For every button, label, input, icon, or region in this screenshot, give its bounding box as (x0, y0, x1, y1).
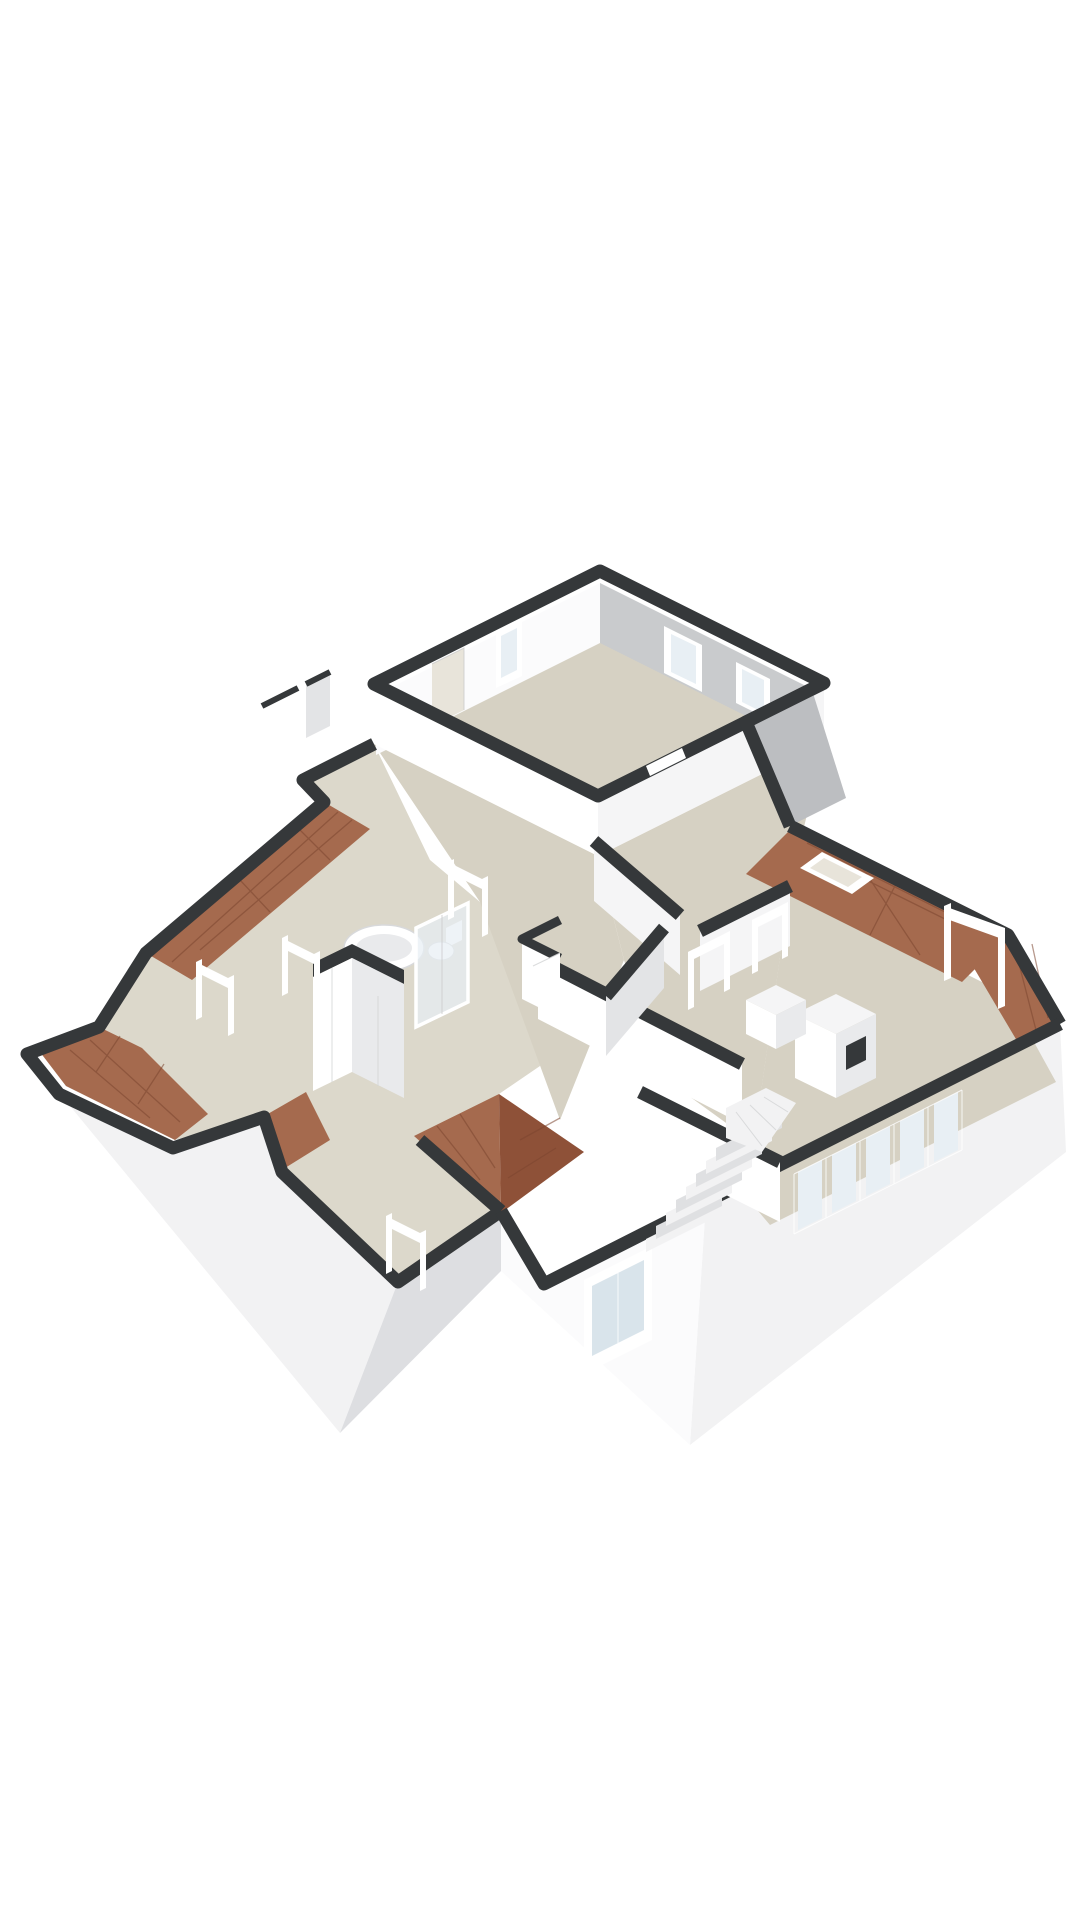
chimney-block (795, 994, 876, 1098)
window-glass (501, 628, 517, 678)
jamb (998, 928, 1005, 1009)
floorplan-3d-render (0, 0, 1080, 1920)
wardrobe (313, 944, 404, 1098)
floorplan-stage (0, 0, 1080, 1920)
gable-right-slope (499, 1094, 584, 1213)
bedroom-window-3 (496, 618, 522, 688)
dormer-slabs (262, 672, 330, 760)
